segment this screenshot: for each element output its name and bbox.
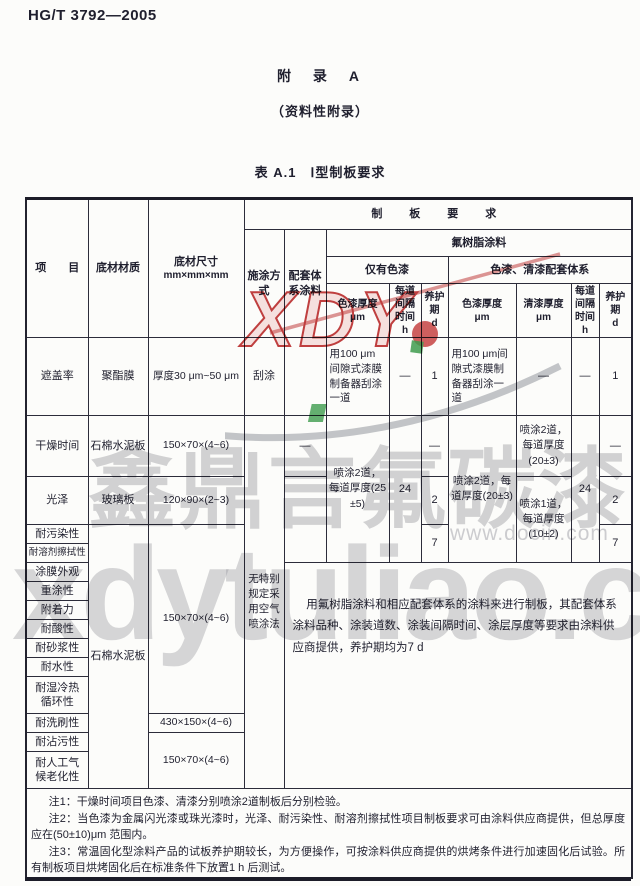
cell-r2-system: — — [284, 416, 326, 477]
th-substrate-size-unit: mm×mm×mm — [151, 269, 242, 282]
th-paint-varnish-system: 色漆、清漆配套体系 — [448, 257, 632, 284]
cell-acid-resistance: 耐酸性 — [26, 620, 88, 639]
cell-r2-cure2: — — [599, 416, 632, 477]
th-interval-2-label: 每道间隔时间 — [573, 285, 598, 324]
cell-r1-paint2: 用100 μm间隙式漆膜制备器刮涂一道 — [448, 338, 516, 416]
cell-scrub-resistance: 耐洗刷性 — [26, 714, 88, 733]
cell-r3-cure2: 2 — [599, 477, 632, 525]
th-application-method: 施涂方式 — [244, 230, 284, 338]
table-caption: 表 A.1 Ⅰ型制板要求 — [0, 162, 640, 181]
cell-r13-size: 430×150×(4~6) — [148, 714, 244, 733]
th-curing-2-unit: d — [601, 317, 631, 330]
notes-row: 注1：干燥时间项目色漆、清漆分别喷涂2道制板后分别检验。 注2：当色漆为金属闪光… — [26, 789, 632, 878]
cell-recoatability: 重涂性 — [26, 582, 88, 601]
cell-r2-varnish2: 喷涂2道，每道厚度(20±3) — [516, 416, 571, 477]
th-interval-2-unit: h — [573, 324, 598, 337]
cell-weathering-resistance: 耐人工气候老化性 — [26, 752, 88, 789]
th-varnish-thickness: 清漆厚度 μm — [516, 284, 571, 338]
cell-size-merged: 150×70×(4~6) — [148, 525, 244, 714]
th-substrate-material: 底材材质 — [88, 199, 148, 338]
cell-paint2-merged: 喷涂2道，每道厚度(20±3) — [448, 416, 516, 563]
th-substrate-size-label: 底材尺寸 — [151, 255, 242, 269]
cell-r1-cure1: 1 — [421, 338, 448, 416]
header-row-1: 项 目 底材材质 底材尺寸 mm×mm×mm 制 板 要 求 — [26, 199, 632, 230]
cell-drying-time: 干燥时间 — [26, 416, 88, 477]
cell-hiding-power: 遮盖率 — [26, 338, 88, 416]
th-curing-2: 养护期 d — [599, 284, 632, 338]
th-curing-1-label: 养护期 — [423, 291, 447, 317]
cell-r1-material: 聚酯膜 — [88, 338, 148, 416]
cell-interval2-merged: 24 — [571, 416, 599, 563]
table-notes: 注1：干燥时间项目色漆、清漆分别喷涂2道制板后分别检验。 注2：当色漆为金属闪光… — [26, 789, 632, 878]
cell-water-resistance: 耐水性 — [26, 658, 88, 677]
th-interval-1-label: 每道间隔时间 — [391, 285, 420, 324]
table-row: 干燥时间 石棉水泥板 150×70×(4~6) 无特别规定采用空气喷涂法 — 喷… — [26, 416, 632, 477]
th-paint-thickness-1-label: 色漆厚度 — [328, 298, 388, 311]
th-substrate-size: 底材尺寸 mm×mm×mm — [148, 199, 244, 338]
th-paint-thickness-1-unit: μm — [328, 311, 388, 324]
cell-r1-interval1: — — [389, 338, 421, 416]
cell-solvent-rub-resistance: 耐溶剂擦拭性 — [26, 544, 88, 563]
cell-r3-size: 120×90×(2~3) — [148, 477, 244, 525]
cell-adhesion: 附着力 — [26, 601, 88, 620]
table-row: 遮盖率 聚酯膜 厚度30 μm~50 μm 刮涂 用100 μm间隙式漆膜制备器… — [26, 338, 632, 416]
th-paint-thickness-1: 色漆厚度 μm — [326, 284, 389, 338]
cell-gloss: 光泽 — [26, 477, 88, 525]
cell-r3-material: 玻璃板 — [88, 477, 148, 525]
cell-material-merged: 石棉水泥板 — [88, 525, 148, 789]
cell-r2-size: 150×70×(4~6) — [148, 416, 244, 477]
cell-r1-varnish2: — — [516, 338, 571, 416]
th-varnish-thickness-unit: μm — [518, 311, 570, 324]
page-bottom-rule — [25, 877, 631, 881]
th-paint-thickness-2-unit: μm — [450, 311, 515, 324]
th-interval-1-unit: h — [391, 324, 420, 337]
note-2: 注2：当色漆为金属闪光漆或珠光漆时，光泽、耐污染性、耐溶剂擦拭性项目制板要求可由… — [31, 811, 625, 844]
cell-film-appearance: 涂膜外观 — [26, 563, 88, 582]
note-3: 注3：常温固化型涂料产品的试板养护期较长，为方便操作，可按涂料供应商提供的烘烤条… — [31, 844, 625, 877]
cell-cure2-merged: 7 — [599, 525, 632, 563]
th-interval-1: 每道间隔时间 h — [389, 284, 421, 338]
th-paint-only: 仅有色漆 — [326, 257, 448, 284]
th-interval-2: 每道间隔时间 h — [571, 284, 599, 338]
cell-r1-size: 厚度30 μm~50 μm — [148, 338, 244, 416]
cell-varnish2-merged: 喷涂1道，每道厚度(10±2) — [516, 477, 571, 563]
cell-r1-paint1: 用100 μm间隙式漆膜制备器刮涂一道 — [326, 338, 389, 416]
cell-r1-method: 刮涂 — [244, 338, 284, 416]
cell-r3-cure1: 2 — [421, 477, 448, 525]
appendix-title: 附 录 A — [0, 66, 640, 86]
cell-interval1-merged: 24 — [389, 416, 421, 563]
th-curing-1: 养护期 d — [421, 284, 448, 338]
cell-stain-resistance: 耐污染性 — [26, 525, 88, 544]
cell-dirt-pickup-resistance: 耐沾污性 — [26, 733, 88, 752]
cell-size-merged-2: 150×70×(4~6) — [148, 733, 244, 789]
appendix-subtitle: （资料性附录） — [0, 101, 640, 120]
cell-application-method-merged: 无特别规定采用空气喷涂法 — [244, 416, 284, 789]
th-panel-requirements: 制 板 要 求 — [244, 199, 632, 230]
cell-humidity-cycle-resistance: 耐湿冷热循环性 — [26, 677, 88, 714]
cell-cure1-merged: 7 — [421, 525, 448, 563]
cell-system-empty-merged — [284, 477, 326, 563]
th-paint-thickness-2-label: 色漆厚度 — [450, 298, 515, 311]
th-supporting-system: 配套体系涂料 — [284, 230, 326, 338]
th-curing-1-unit: d — [423, 317, 447, 330]
note-1: 注1：干燥时间项目色漆、清漆分别喷涂2道制板后分别检验。 — [31, 794, 625, 811]
cell-r1-interval2: — — [571, 338, 599, 416]
th-item: 项 目 — [26, 199, 88, 338]
cell-mortar-resistance: 耐砂浆性 — [26, 639, 88, 658]
cell-paint1-merged: 喷涂2道，每道厚度(25±5) — [326, 416, 389, 563]
panel-requirements-table: 项 目 底材材质 底材尺寸 mm×mm×mm 制 板 要 求 施涂方式 配套体系… — [25, 197, 633, 879]
th-curing-2-label: 养护期 — [601, 291, 631, 317]
th-varnish-thickness-label: 清漆厚度 — [518, 298, 570, 311]
cell-r1-system-empty — [284, 338, 326, 416]
th-paint-thickness-2: 色漆厚度 μm — [448, 284, 516, 338]
cell-r2-cure1: — — [421, 416, 448, 477]
cell-r1-cure2: 1 — [599, 338, 632, 416]
doc-number: HG/T 3792—2005 — [28, 7, 157, 24]
cell-r2-material: 石棉水泥板 — [88, 416, 148, 477]
th-fluororesin-coating: 氟树脂涂料 — [326, 230, 632, 257]
document-page: HG/T 3792—2005 附 录 A （资料性附录） 表 A.1 Ⅰ型制板要… — [0, 0, 640, 886]
cell-panel-note: 用氟树脂涂料和相应配套体系的涂料来进行制板，其配套体系涂料品种、涂装道数、涂装间… — [284, 563, 632, 789]
